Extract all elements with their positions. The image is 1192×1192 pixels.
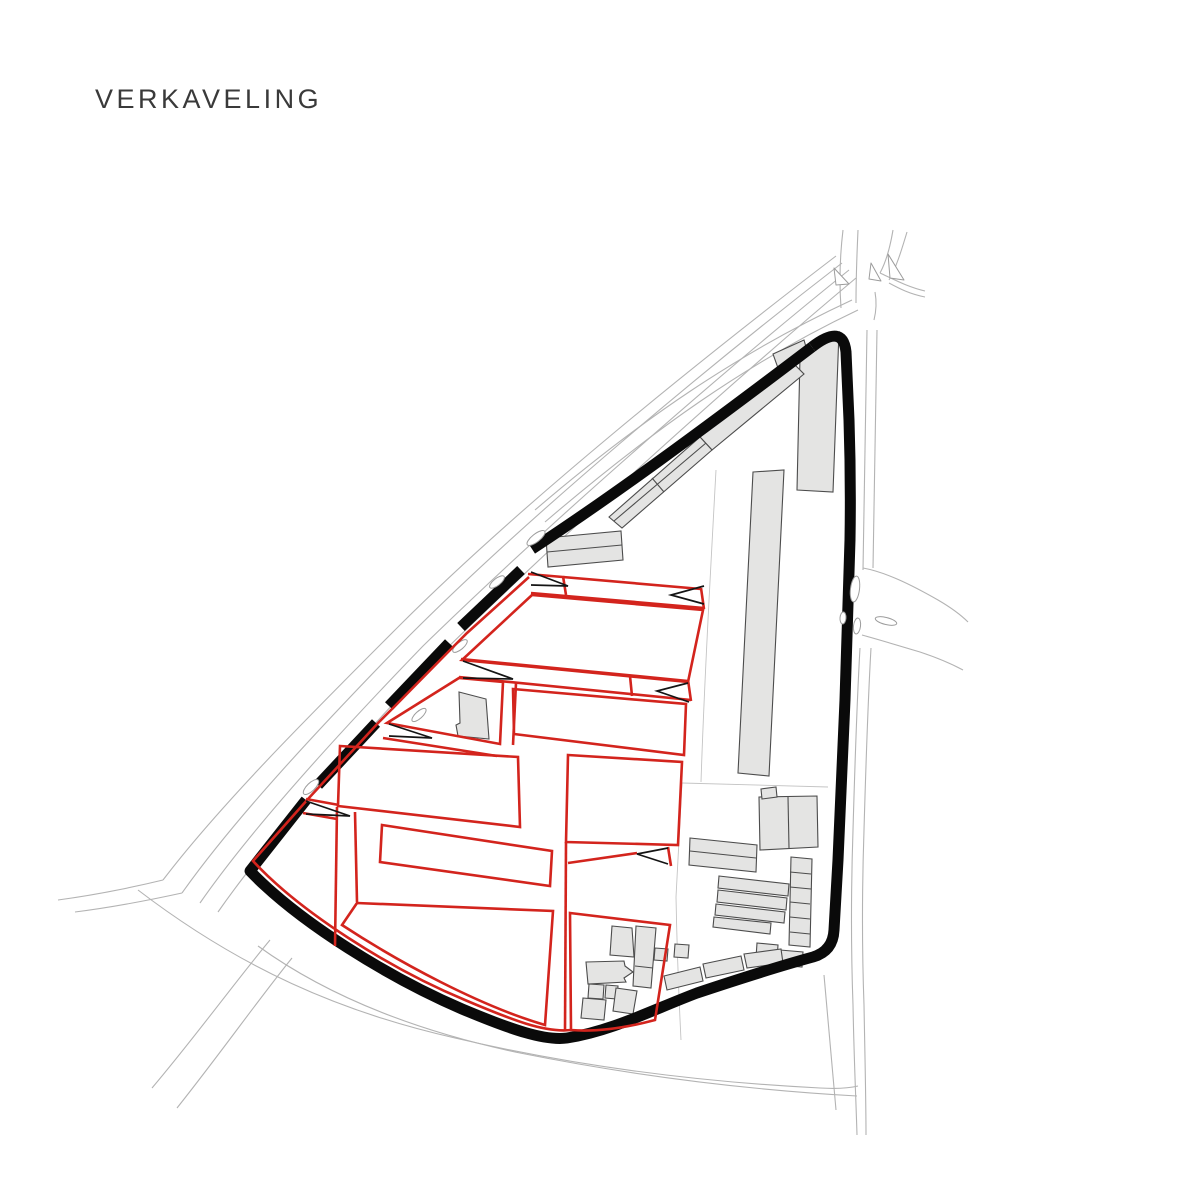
site-boundary-segment bbox=[389, 643, 449, 706]
parcel-line bbox=[380, 825, 552, 886]
access-arrows bbox=[306, 572, 704, 864]
site-boundary-segment bbox=[318, 723, 376, 785]
traffic-island bbox=[874, 615, 897, 627]
parcel-line bbox=[701, 588, 704, 609]
property-line bbox=[701, 470, 716, 782]
building bbox=[613, 988, 637, 1014]
road-line bbox=[75, 893, 182, 912]
road-line bbox=[856, 230, 858, 303]
parcel-line bbox=[688, 680, 691, 701]
parcel-line bbox=[462, 595, 703, 682]
road-line bbox=[177, 958, 292, 1108]
traffic-island bbox=[888, 254, 904, 280]
building bbox=[674, 944, 689, 958]
parcel-line bbox=[568, 853, 637, 863]
road-line bbox=[824, 975, 836, 1110]
road-line bbox=[863, 330, 867, 570]
building bbox=[738, 470, 784, 776]
parcel-line bbox=[461, 659, 688, 681]
road-line bbox=[862, 635, 963, 670]
parcel-line bbox=[335, 807, 337, 946]
traffic-island bbox=[834, 268, 849, 285]
parcel-line bbox=[513, 689, 686, 755]
road-line bbox=[852, 648, 861, 1135]
traffic-island bbox=[840, 612, 847, 624]
site-plan-page: VERKAVELING bbox=[0, 0, 1192, 1192]
traffic-islands bbox=[301, 254, 904, 797]
building bbox=[664, 967, 703, 990]
building bbox=[588, 984, 604, 999]
road-line bbox=[863, 648, 872, 1135]
traffic-island bbox=[853, 618, 862, 635]
property-line bbox=[682, 783, 828, 787]
building bbox=[581, 998, 606, 1020]
building bbox=[633, 926, 656, 988]
road-line bbox=[873, 330, 877, 568]
parcel-line bbox=[565, 842, 566, 1031]
site-boundary-segment bbox=[461, 570, 521, 627]
traffic-island bbox=[410, 706, 428, 723]
road-line bbox=[152, 940, 270, 1088]
building bbox=[610, 926, 634, 957]
verkaveling-plan-drawing bbox=[0, 0, 1192, 1192]
building bbox=[700, 363, 804, 450]
road-line bbox=[880, 273, 925, 291]
parcel-line bbox=[338, 746, 520, 827]
parcel-line bbox=[566, 755, 682, 845]
parcel-line bbox=[531, 593, 704, 608]
building bbox=[761, 787, 777, 799]
traffic-island bbox=[869, 263, 881, 281]
building bbox=[456, 692, 489, 739]
road-line bbox=[163, 256, 836, 880]
parcel-line bbox=[668, 847, 671, 866]
access-arrow bbox=[637, 848, 668, 864]
road-line bbox=[863, 568, 968, 622]
road-line bbox=[874, 292, 876, 320]
building bbox=[586, 961, 633, 984]
parcel-line bbox=[355, 812, 357, 902]
road-line bbox=[840, 230, 843, 308]
road-line bbox=[138, 890, 858, 1088]
